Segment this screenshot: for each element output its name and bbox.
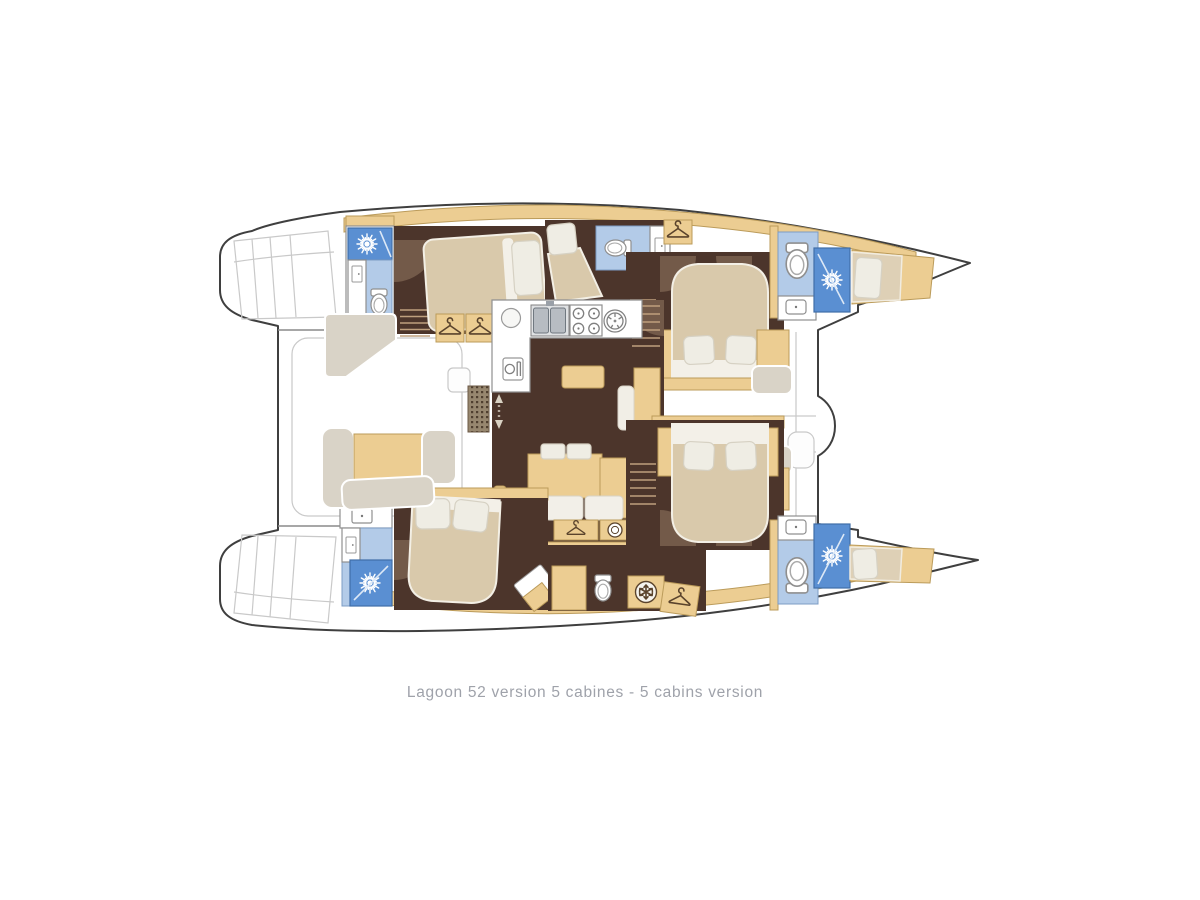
stove-burners-icon [570, 305, 602, 336]
island-double-bed [407, 495, 500, 604]
round-hob-icon [604, 310, 626, 332]
wardrobe [664, 220, 692, 244]
washer-icon [608, 523, 622, 537]
door-icon [346, 537, 356, 553]
toilet-icon [786, 243, 808, 278]
island-double-bed [671, 264, 769, 382]
vent-grid [468, 386, 489, 432]
toilet-icon [371, 289, 387, 315]
island-double-bed [671, 424, 769, 542]
cockpit-table [354, 434, 424, 482]
cockpit-bench [341, 476, 434, 511]
cabinet [552, 566, 586, 610]
wardrobe [554, 520, 598, 540]
bathroom-starboard-forward [770, 516, 850, 610]
coffee-table [562, 366, 604, 388]
cabin-center-forward-starboard [626, 416, 784, 550]
corridor-starboard [548, 545, 706, 616]
double-sink-icon [531, 301, 569, 336]
round-basin-icon [502, 309, 521, 328]
bathroom-port-aft [346, 216, 394, 318]
bow-berth-starboard [850, 545, 934, 583]
toilet-icon [595, 575, 611, 601]
floor-plan-canvas: Lagoon 52 version 5 cabines - 5 cabins v… [0, 0, 1200, 900]
wardrobe [660, 582, 700, 617]
door-icon [352, 266, 362, 282]
bow-berth-port [852, 250, 934, 304]
boat-floor-plan: Lagoon 52 version 5 cabines - 5 cabins v… [0, 0, 1200, 900]
plan-caption: Lagoon 52 version 5 cabines - 5 cabins v… [407, 684, 763, 701]
dining-icon [503, 358, 523, 380]
toilet-icon [786, 558, 808, 593]
bathroom-starboard-aft [340, 504, 392, 606]
snowflake-icon [636, 582, 657, 603]
